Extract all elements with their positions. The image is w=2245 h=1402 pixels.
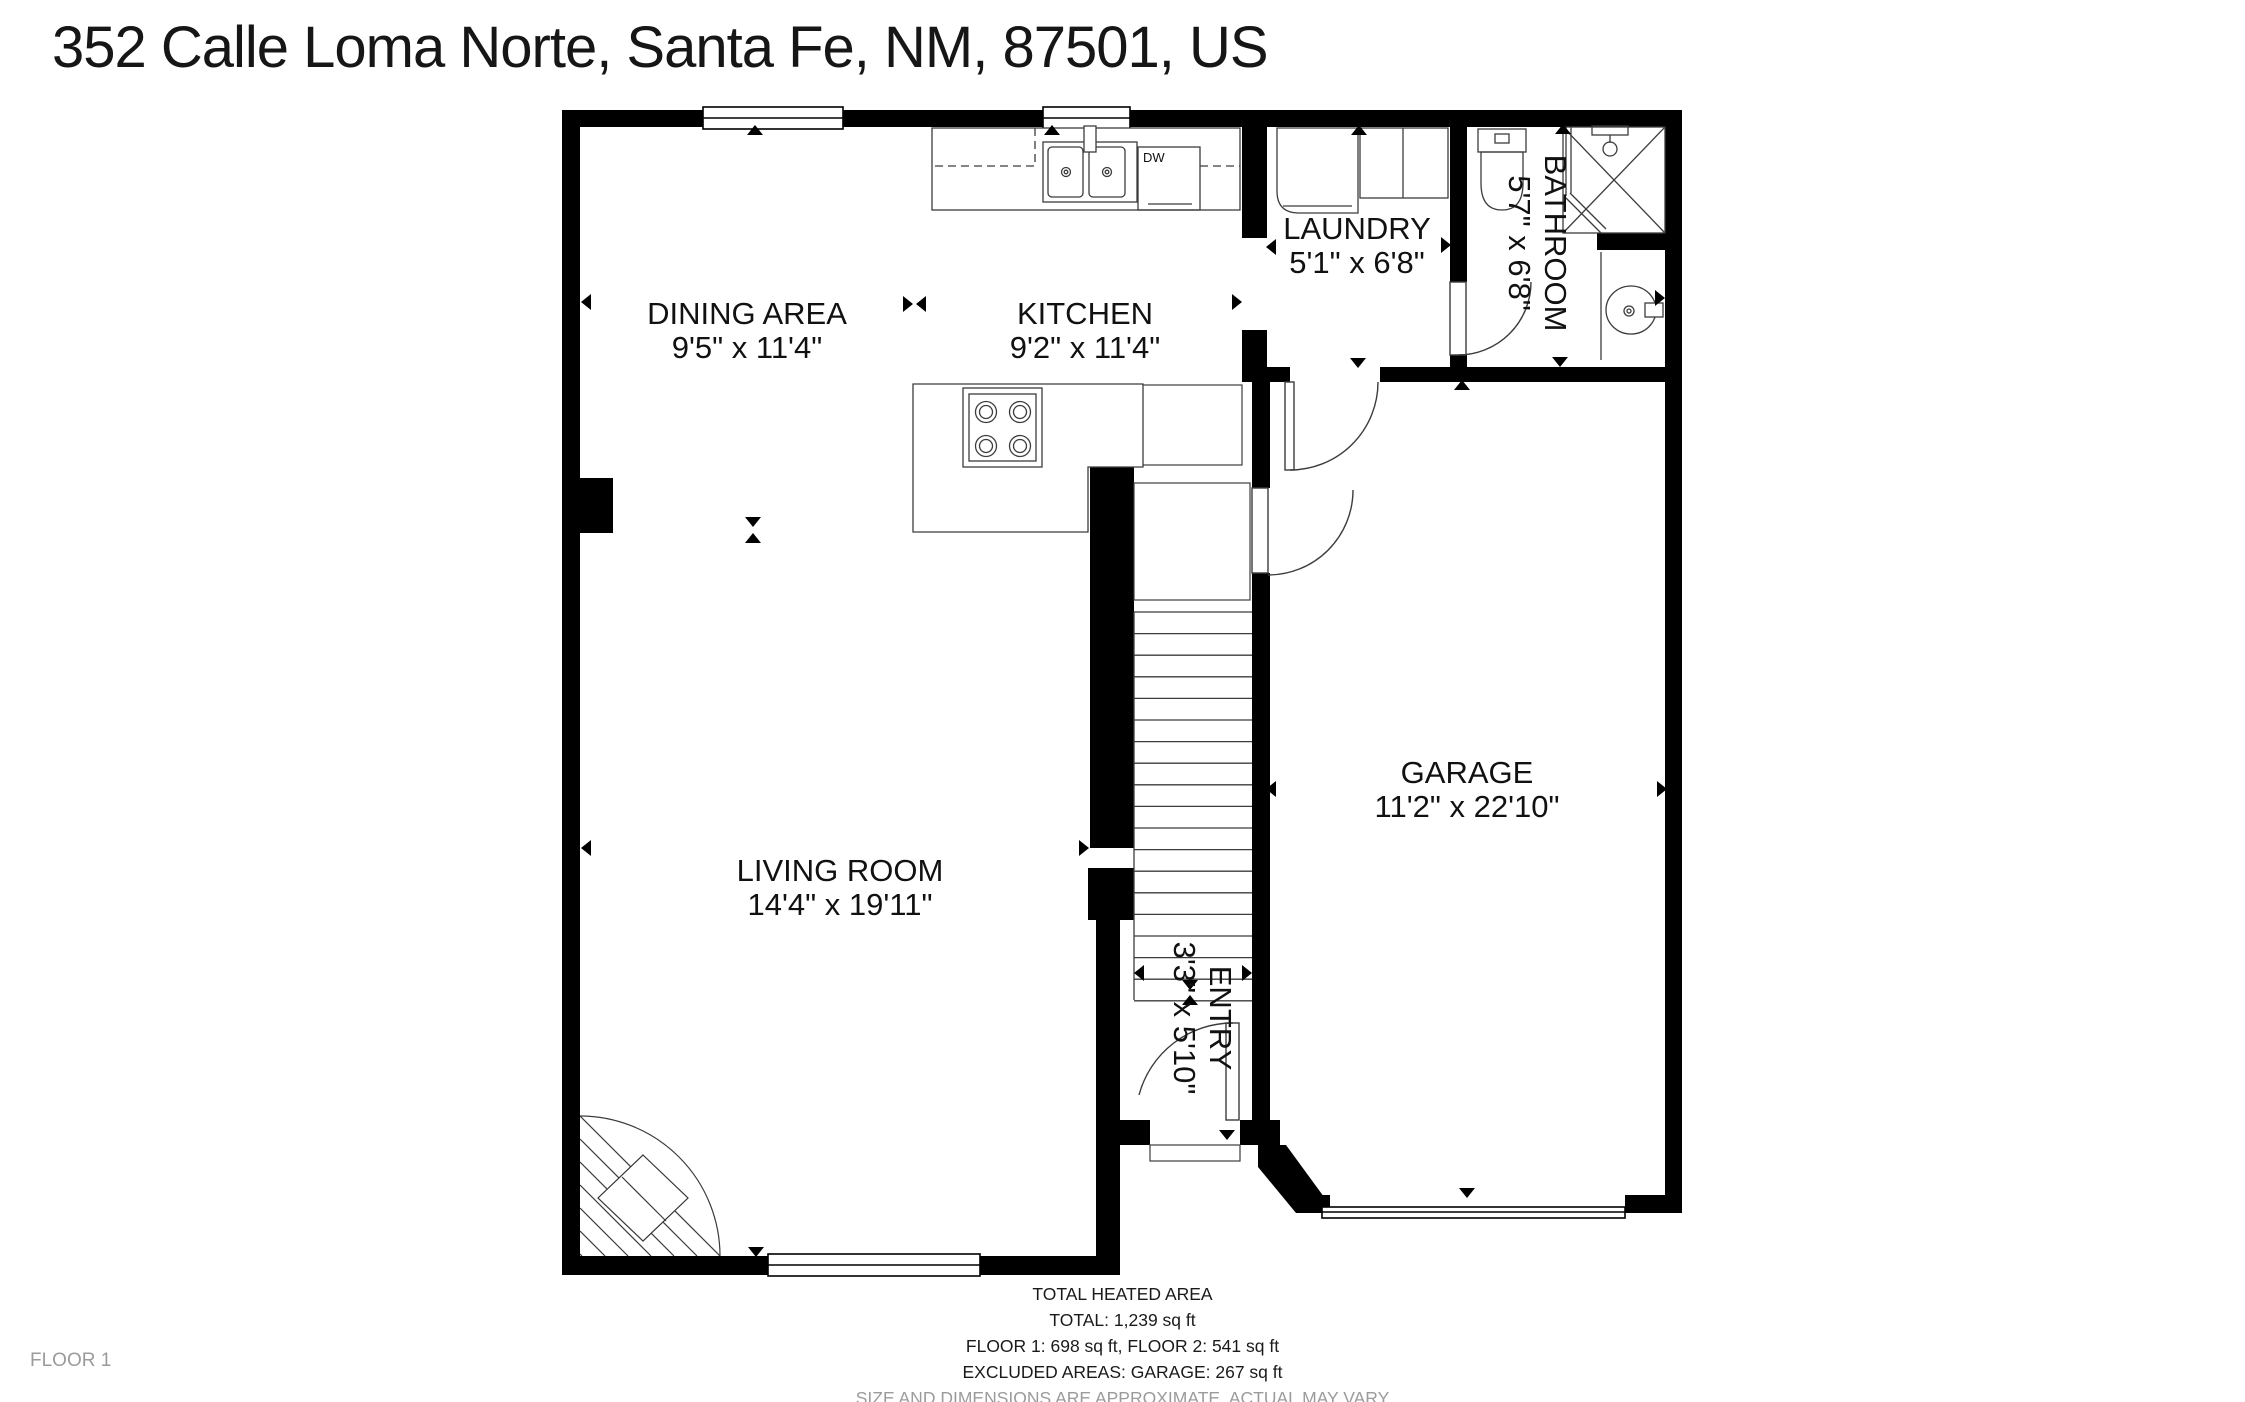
floor-badge: FLOOR 1 <box>30 1350 111 1372</box>
floor-plan-drawing: DW <box>0 0 2245 1402</box>
arrow-icon <box>903 296 913 312</box>
wall-divider-block <box>1088 868 1134 920</box>
area-summary: TOTAL HEATED AREA TOTAL: 1,239 sq ft FLO… <box>0 1281 2245 1402</box>
room-label-laundry-dims: 5'1" x 6'8" <box>1289 245 1425 280</box>
dryer-cabinet <box>1360 128 1448 198</box>
room-label-living-room-name: LIVING ROOM <box>737 853 944 888</box>
entry-step <box>1150 1145 1240 1161</box>
wall-hall-top-a <box>1242 367 1290 382</box>
laundry-fixtures <box>1277 128 1448 213</box>
fireplace <box>580 1116 720 1256</box>
arrow-icon <box>748 1247 764 1257</box>
arrow-icon <box>1350 358 1366 368</box>
window-dining <box>703 107 843 129</box>
wall-entry-bottom-left <box>1096 1120 1150 1145</box>
summary-disclaimer: SIZE AND DIMENSIONS ARE APPROXIMATE, ACT… <box>0 1385 2245 1402</box>
summary-floors: FLOOR 1: 698 sq ft, FLOOR 2: 541 sq ft <box>0 1333 2245 1359</box>
room-label-garage-dims: 11'2" x 22'10" <box>1375 789 1560 824</box>
closet-door <box>1252 488 1353 575</box>
arrow-icon <box>916 296 926 312</box>
room-label-bathroom-dims: 5'7" x 6'8" <box>1502 175 1537 311</box>
shower <box>1563 126 1665 233</box>
summary-excluded: EXCLUDED AREAS: GARAGE: 267 sq ft <box>0 1359 2245 1385</box>
wall-stairs-right-upper <box>1252 382 1270 488</box>
wall-stairs-right-lower <box>1252 573 1270 1120</box>
room-label-kitchen-name: KITCHEN <box>1017 296 1153 331</box>
wall-laundry-bathroom-stub <box>1450 355 1467 382</box>
arrow-icon <box>1552 357 1568 367</box>
summary-total: TOTAL: 1,239 sq ft <box>0 1307 2245 1333</box>
wall-hall-top-b <box>1380 367 1682 382</box>
wall-left-block <box>578 478 613 533</box>
arrow-icon <box>1079 840 1089 856</box>
summary-heading: TOTAL HEATED AREA <box>0 1281 2245 1307</box>
windows <box>703 107 1625 1276</box>
arrow-icon <box>1219 1130 1235 1140</box>
room-label-garage-name: GARAGE <box>1401 755 1534 790</box>
washer <box>1277 128 1358 213</box>
stove <box>963 388 1042 467</box>
arrow-icon <box>1459 1188 1475 1198</box>
laundry-hall-door <box>1285 382 1378 470</box>
wall-left <box>562 110 580 1275</box>
wall-right <box>1665 110 1682 1213</box>
wall-laundry-left-upper <box>1242 127 1267 238</box>
wall-entry-left <box>1096 920 1120 1256</box>
room-label-entry-dims: 3'3" x 5'10" <box>1167 942 1202 1095</box>
wall-laundry-bathroom <box>1450 127 1467 282</box>
room-label-laundry-name: LAUNDRY <box>1283 211 1431 246</box>
floor-plan-page: 352 Calle Loma Norte, Santa Fe, NM, 8750… <box>0 0 2245 1402</box>
wall-garage-stub-right <box>1625 1195 1682 1213</box>
garage-door <box>1322 1207 1625 1218</box>
room-label-bathroom-name: BATHROOM <box>1538 155 1573 332</box>
room-label-dining-area-dims: 9'5" x 11'4" <box>672 330 822 365</box>
arrow-icon <box>581 840 591 856</box>
room-label-dining-area-name: DINING AREA <box>647 296 847 331</box>
hall-landing <box>1134 385 1242 465</box>
dishwasher-label: DW <box>1143 150 1165 165</box>
arrow-icon <box>1232 294 1242 310</box>
bathroom-sink <box>1601 252 1663 360</box>
arrow-icon <box>581 294 591 310</box>
window-living <box>768 1254 980 1276</box>
wall-divider <box>1090 467 1134 848</box>
arrow-icon <box>1266 239 1276 255</box>
wall-entry-bottom-right <box>1240 1120 1280 1145</box>
room-label-entry-name: ENTRY <box>1203 966 1238 1071</box>
arrow-icon <box>745 517 761 527</box>
room-label-living-room-dims: 14'4" x 19'11" <box>748 887 933 922</box>
understair-closet <box>1134 483 1250 600</box>
wall-shower-stub <box>1597 233 1667 250</box>
arrow-icon <box>1441 237 1451 253</box>
room-label-kitchen-dims: 9'2" x 11'4" <box>1010 330 1160 365</box>
arrow-icon <box>745 533 761 543</box>
